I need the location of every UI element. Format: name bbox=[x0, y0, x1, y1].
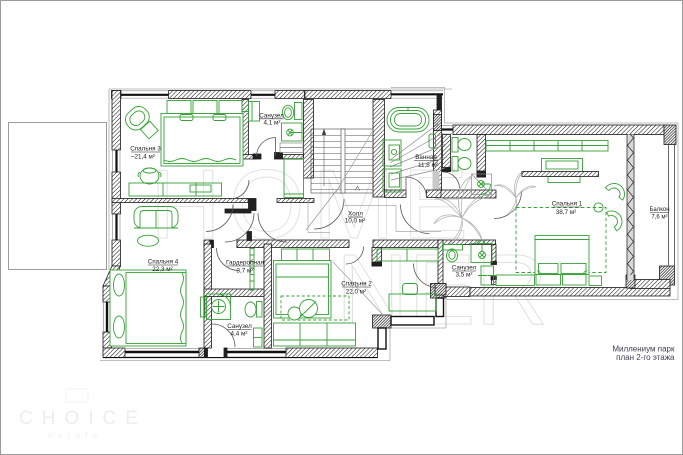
svg-text:Спальня 4: Спальня 4 bbox=[148, 259, 179, 266]
svg-text:estate: estate bbox=[48, 430, 103, 440]
svg-text:Санузел: Санузел bbox=[452, 265, 477, 272]
svg-text:22,0 м²: 22,0 м² bbox=[346, 289, 366, 296]
svg-text:Спальня 2: Спальня 2 bbox=[341, 281, 372, 288]
svg-text:Балкон: Балкон bbox=[649, 207, 669, 213]
svg-text:22,3 м²: 22,3 м² bbox=[152, 266, 172, 273]
svg-text:CHOICE: CHOICE bbox=[19, 408, 147, 429]
svg-text:Санузел: Санузел bbox=[227, 323, 252, 330]
svg-text:Холл: Холл bbox=[348, 211, 363, 218]
svg-text:10,0 м²: 10,0 м² bbox=[345, 218, 365, 225]
svg-text:Спальня 1: Спальня 1 bbox=[552, 201, 583, 208]
svg-text:Гардеробная: Гардеробная bbox=[226, 259, 264, 267]
svg-text:11,8 м²: 11,8 м² bbox=[418, 162, 438, 169]
svg-text:38,7 м²: 38,7 м² bbox=[556, 209, 576, 216]
svg-text:7,6 м²: 7,6 м² bbox=[651, 214, 667, 220]
svg-text:3,5 м²: 3,5 м² bbox=[456, 272, 473, 279]
svg-text:4,4 м²: 4,4 м² bbox=[231, 331, 248, 338]
svg-text:Ванная: Ванная bbox=[415, 154, 437, 161]
svg-text:–21,4 м²: –21,4 м² bbox=[131, 154, 155, 161]
svg-text:план 2-го этажа: план 2-го этажа bbox=[616, 353, 675, 362]
svg-text:3,7 м²: 3,7 м² bbox=[237, 268, 254, 275]
svg-text:Санузел: Санузел bbox=[259, 112, 284, 119]
svg-text:4,1 м²: 4,1 м² bbox=[264, 119, 281, 126]
svg-text:Спальня 3: Спальня 3 bbox=[130, 146, 161, 153]
